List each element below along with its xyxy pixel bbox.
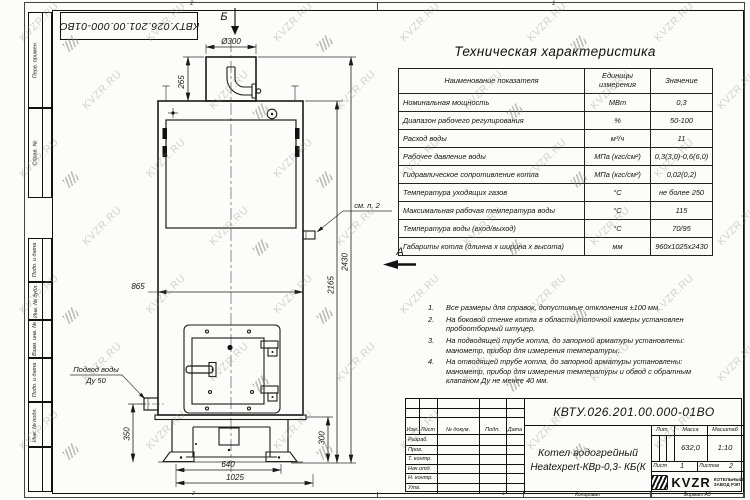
- scale-value: 1:10: [707, 435, 743, 461]
- see-note-leader: см. п. 2: [317, 201, 392, 232]
- table-cell: °С: [585, 220, 651, 238]
- col-header: Лист: [419, 426, 437, 434]
- svg-text:300: 300: [318, 431, 327, 445]
- table-cell: не более 250: [651, 184, 713, 202]
- format-cell: Формат А3: [650, 492, 744, 498]
- spec-table: Наименование показателя Единицы измерени…: [398, 68, 713, 256]
- scale-label: Масштаб: [707, 426, 743, 435]
- lit-label: Лит.: [651, 426, 674, 435]
- svg-text:см. п. 2: см. п. 2: [354, 201, 380, 210]
- doc-number: КВТУ.026.201.00.000-01ВО: [524, 399, 743, 426]
- col-header: Изм.: [406, 426, 419, 434]
- kopiroval-cell: Копировал: [523, 492, 652, 498]
- table-cell: Габариты котла (длинна х ширина х высота…: [399, 238, 585, 256]
- water-inlet: Подвод воды Ду 50: [70, 365, 166, 410]
- svg-text:640: 640: [221, 460, 235, 469]
- table-row: Температура воды (вход/выход)°С70/95: [399, 220, 713, 238]
- column-header: Значение: [651, 69, 713, 94]
- table-cell: 0,3: [651, 94, 713, 112]
- staff-row-label: Нач.отд.: [408, 466, 431, 472]
- table-cell: %: [585, 112, 651, 130]
- sheet-number: 1: [680, 463, 684, 470]
- svg-text:265: 265: [177, 75, 186, 90]
- col-header: № докум.: [437, 426, 479, 434]
- svg-text:350: 350: [123, 427, 132, 441]
- staff-row-label: Утв.: [408, 485, 421, 491]
- table-row: Диапазон рабочего регулирования%50-100: [399, 112, 713, 130]
- mass-value: 632,0: [674, 435, 707, 461]
- drawing-sheet: 2 1 2 1 Перв. примен. Справ. № Подп. и д…: [0, 0, 750, 500]
- table-cell: Температура уходящих газов: [399, 184, 585, 202]
- table-row: Расход водым³/ч11: [399, 130, 713, 148]
- sheets-label: Листов: [699, 463, 719, 469]
- tech-characteristics: Техническая характеристика Наименование …: [398, 44, 712, 256]
- company-name: КОТЕЛЬНЫЙ ЗАВОД РЭП: [714, 477, 743, 488]
- mass-label: Масса: [674, 426, 707, 435]
- boiler-body: [158, 101, 315, 415]
- table-row: Максимальная рабочая температура воды°С1…: [399, 202, 713, 220]
- table-cell: м³/ч: [585, 130, 651, 148]
- svg-text:2165: 2165: [327, 276, 336, 295]
- table-title: Техническая характеристика: [398, 44, 712, 59]
- svg-text:1025: 1025: [226, 473, 244, 482]
- sheet-label: Лист: [653, 463, 667, 469]
- svg-text:2430: 2430: [341, 253, 350, 272]
- product-name-cell: Котел водогрейный Heatexpert-КВр-0,3- КБ…: [524, 426, 651, 493]
- table-cell: 11: [651, 130, 713, 148]
- table-cell: 960х1025х2430: [651, 238, 713, 256]
- svg-text:Ду 50: Ду 50: [85, 376, 106, 385]
- boiler-base: [155, 415, 306, 462]
- staff-row-label: Н. контр.: [408, 475, 433, 481]
- staff-row-label: Пров.: [408, 447, 423, 453]
- table-cell: °С: [585, 202, 651, 220]
- company-cell: KVZR КОТЕЛЬНЫЙ ЗАВОД РЭП: [651, 471, 743, 493]
- table-cell: 0,3(3,0)-0,6(6,0): [651, 148, 713, 166]
- table-cell: мм: [585, 238, 651, 256]
- col-header: Дата: [506, 426, 524, 434]
- staff-row-label: Разраб.: [408, 437, 428, 443]
- table-cell: Номинальная мощность: [399, 94, 585, 112]
- table-cell: Расход воды: [399, 130, 585, 148]
- table-cell: МПа (кгс/см²): [585, 148, 651, 166]
- sheets-total: 2: [729, 463, 733, 470]
- column-header: Единицы измерения: [585, 69, 651, 94]
- sheet-cell: Лист 1: [651, 461, 697, 471]
- signature-header-row: Изм. Лист № докум. Подп. Дата: [406, 426, 524, 435]
- table-cell: 70/95: [651, 220, 713, 238]
- col-header: Подп.: [479, 426, 506, 434]
- table-row: Гидравлическое сопротивление котлаМПа (к…: [399, 166, 713, 184]
- svg-text:Ø300: Ø300: [220, 37, 241, 46]
- table-cell: МПа (кгс/см²): [585, 166, 651, 184]
- note-item: 2.На боковой стенке котла в области топо…: [428, 315, 720, 334]
- kvzr-logo-text: KVZR: [671, 475, 710, 490]
- column-header: Наименование показателя: [399, 69, 585, 94]
- svg-text:865: 865: [131, 282, 145, 291]
- kvzr-logo-icon: [651, 475, 668, 490]
- table-cell: Диапазон рабочего регулирования: [399, 112, 585, 130]
- table-cell: Температура воды (вход/выход): [399, 220, 585, 238]
- table-cell: МВт: [585, 94, 651, 112]
- table-cell: Гидравлическое сопротивление котла: [399, 166, 585, 184]
- note-item: 3.На подводящей трубе котла, до запорной…: [428, 336, 720, 355]
- table-row: Габариты котла (длинна х ширина х высота…: [399, 238, 713, 256]
- note-item: 4.На отводящей трубе котла, до запорной …: [428, 357, 720, 386]
- table-header-row: Наименование показателя Единицы измерени…: [399, 69, 713, 94]
- table-cell: 50-100: [651, 112, 713, 130]
- svg-text:Б: Б: [220, 11, 227, 23]
- staff-row-label: Т. контр.: [408, 456, 432, 462]
- notes-list: 1.Все размеры для справок, допустимые от…: [428, 303, 720, 388]
- table-cell: °С: [585, 184, 651, 202]
- product-name-line1: Котел водогрейный: [538, 447, 638, 459]
- furnace-door: [184, 325, 280, 413]
- view-b-arrow: Б: [220, 8, 239, 35]
- table-row: Номинальная мощностьМВт0,3: [399, 94, 713, 112]
- note-item: 1.Все размеры для справок, допустимые от…: [428, 303, 720, 313]
- table-row: Температура уходящих газов°Сне более 250: [399, 184, 713, 202]
- table-row: Рабочее давление водыМПа (кгс/см²)0,3(3,…: [399, 148, 713, 166]
- svg-text:Подвод воды: Подвод воды: [73, 365, 119, 374]
- sheets-cell: Листов 2: [697, 461, 743, 471]
- table-cell: Рабочее давление воды: [399, 148, 585, 166]
- product-name-line2: Heatexpert-КВр-0,3- КБ(К: [530, 462, 645, 473]
- table-cell: 115: [651, 202, 713, 220]
- title-block: КВТУ.026.201.00.000-01ВО Изм. Лист № док…: [405, 398, 742, 492]
- table-cell: 0,02(0,2): [651, 166, 713, 184]
- table-cell: Максимальная рабочая температура воды: [399, 202, 585, 220]
